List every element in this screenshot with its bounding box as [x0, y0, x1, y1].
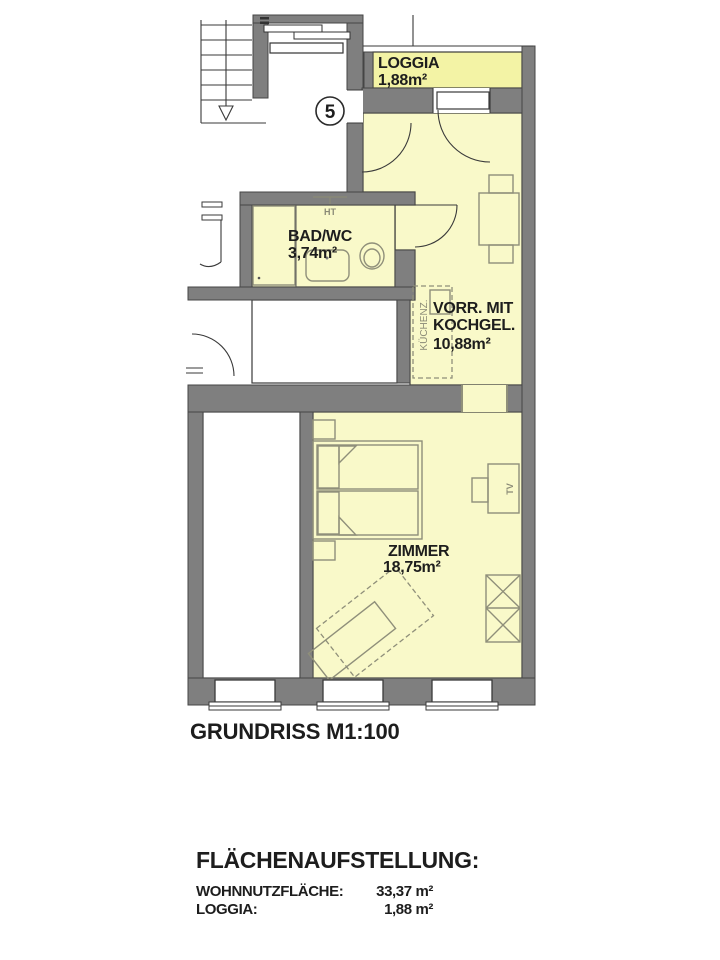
wall-segment — [362, 88, 433, 113]
zimmer-label: ZIMMER — [388, 543, 450, 560]
wall-segment — [364, 52, 373, 88]
heating-label: HT — [324, 207, 336, 217]
area-summary: FLÄCHENAUFSTELLUNG: WOHNNUTZFLÄCHE: 33,3… — [196, 847, 479, 919]
windows — [209, 680, 498, 710]
shower-drain — [258, 277, 261, 280]
wall-segment — [240, 205, 252, 300]
plan-title: GRUNDRISS M1:100 — [190, 719, 400, 745]
floorplan-page: HT KÜCHENZ. TV — [0, 0, 720, 960]
vorraum-area: 10,88m² — [433, 336, 491, 353]
wall-segment — [253, 15, 363, 23]
wall-segment — [522, 46, 535, 705]
wall-segment — [395, 250, 415, 287]
unit-number: 5 — [325, 102, 336, 123]
corridor-door-swing — [200, 220, 221, 267]
area-row-value: 1,88 m² — [384, 901, 433, 919]
zimmer-door-opening — [461, 385, 508, 412]
wall-segment — [188, 385, 462, 412]
bad-wc-area: 3,74m² — [288, 245, 337, 262]
vorraum-label-line2: KOCHGEL. — [433, 317, 515, 334]
corridor-line — [186, 368, 203, 373]
wall-segment — [188, 412, 203, 678]
entry-door-opening — [346, 90, 363, 123]
neighbor-door-arc — [192, 334, 234, 376]
window — [432, 680, 492, 702]
zimmer-area: 18,75m² — [383, 559, 441, 576]
wall-segment — [507, 385, 522, 412]
neighbor-room — [252, 300, 397, 383]
area-row-value: 33,37 m² — [376, 883, 433, 901]
wall-segment — [253, 23, 268, 98]
corridor-door-jamb — [202, 215, 222, 220]
area-summary-row: LOGGIA: 1,88 m² — [196, 901, 433, 919]
exterior-line — [363, 15, 533, 46]
wall-segment — [490, 88, 522, 113]
wall-segment — [240, 192, 415, 205]
unit-number-badge: 5 — [316, 97, 344, 125]
window — [215, 680, 275, 702]
elevator-threshold — [270, 43, 343, 53]
loggia-area: 1,88m² — [378, 72, 427, 89]
wall-segment — [188, 287, 415, 300]
floorplan-drawing: HT KÜCHENZ. TV — [0, 0, 720, 960]
vorraum-label-line1: VORR. MIT — [433, 300, 513, 317]
area-row-label: WOHNNUTZFLÄCHE: — [196, 883, 376, 901]
elevator-mark — [260, 17, 269, 20]
corridor-door-jamb — [202, 202, 222, 207]
bad-wc-label: BAD/WC — [288, 228, 353, 245]
area-row-label: LOGGIA: — [196, 901, 384, 919]
neighbor-room — [203, 412, 300, 678]
loggia-label: LOGGIA — [378, 55, 440, 72]
window — [323, 680, 383, 702]
area-summary-row: WOHNNUTZFLÄCHE: 33,37 m² — [196, 883, 433, 901]
kitchenette-label: KÜCHENZ. — [418, 299, 430, 350]
elevator-mark — [260, 22, 269, 25]
stair-direction-arrow — [219, 106, 233, 120]
balcony-door-leaf — [437, 92, 489, 109]
elevator-door-panel — [264, 25, 322, 32]
elevator-door-panel — [294, 32, 350, 39]
tv-label: TV — [505, 483, 515, 495]
area-summary-heading: FLÄCHENAUFSTELLUNG: — [196, 847, 479, 874]
wall-segment — [397, 300, 410, 383]
wall-segment — [300, 412, 313, 678]
